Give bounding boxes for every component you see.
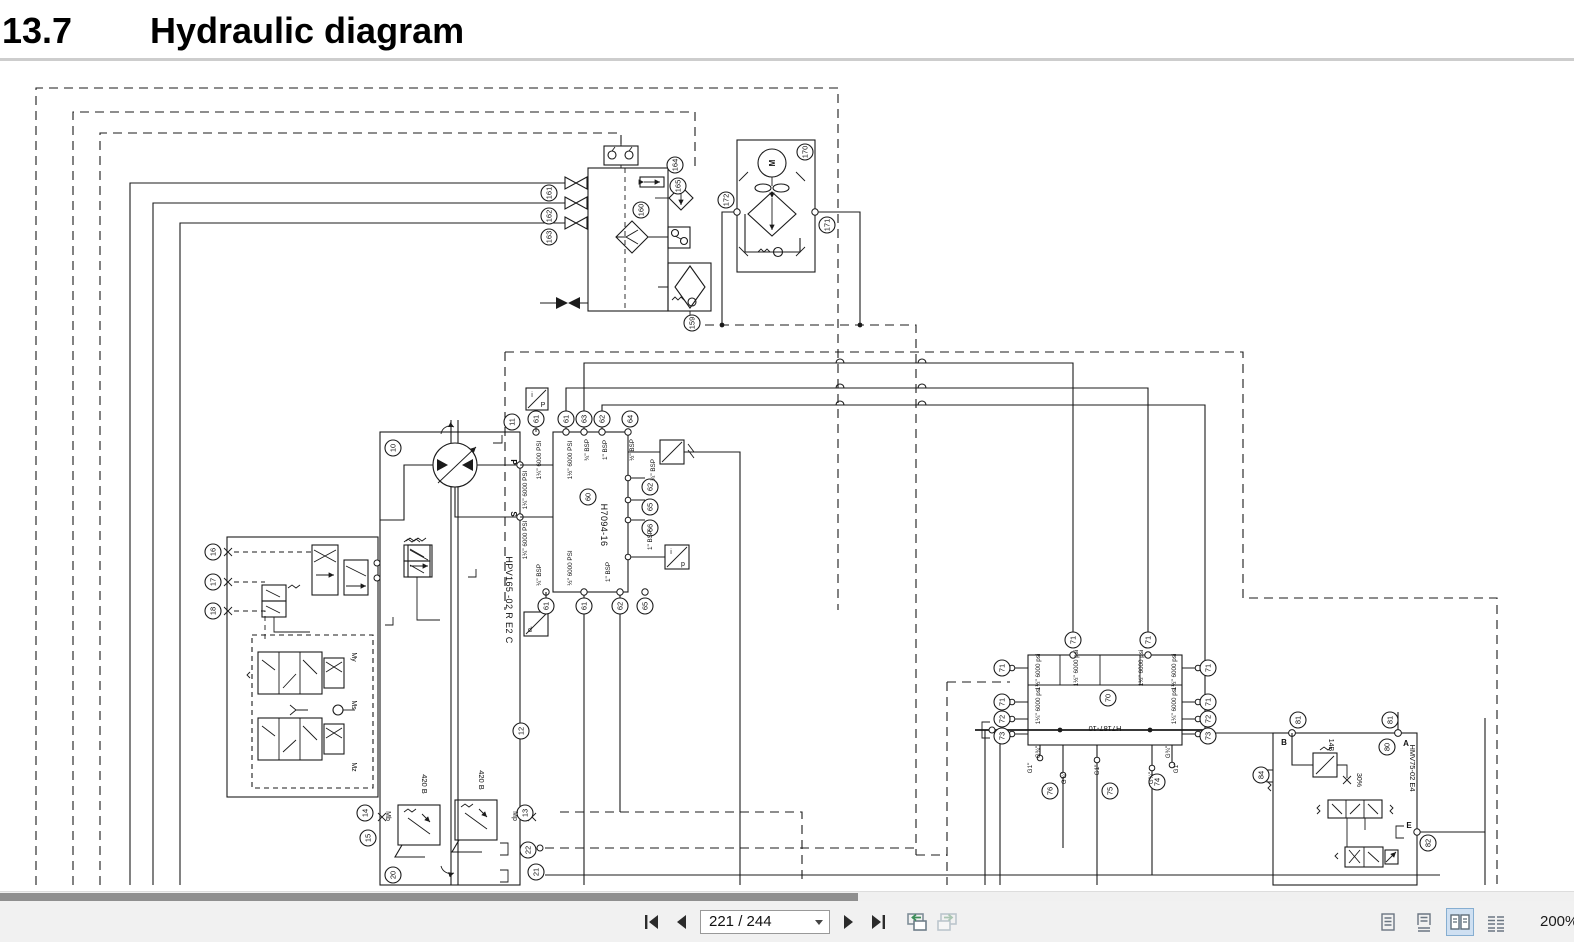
svg-text:1½" 6000 PSI: 1½" 6000 PSI bbox=[566, 440, 574, 479]
svg-text:162: 162 bbox=[545, 210, 554, 223]
svg-text:84: 84 bbox=[1257, 771, 1266, 779]
svg-text:18: 18 bbox=[209, 607, 218, 615]
svg-text:16: 16 bbox=[209, 548, 218, 556]
two-page-continuous-view-icon bbox=[1485, 911, 1507, 933]
svg-text:i: i bbox=[670, 549, 672, 556]
motor-block-label: HMV75-02 E4 bbox=[1408, 744, 1417, 791]
svg-text:72: 72 bbox=[1204, 715, 1213, 723]
svg-text:B: B bbox=[1281, 738, 1287, 747]
left-valve-group bbox=[224, 537, 432, 797]
svg-text:63: 63 bbox=[580, 415, 589, 423]
svg-text:G¾": G¾" bbox=[1061, 772, 1068, 784]
previous-view-icon bbox=[904, 911, 928, 933]
svg-text:¾" BSP: ¾" BSP bbox=[584, 439, 591, 461]
svg-text:71: 71 bbox=[1204, 664, 1213, 672]
svg-text:G¾": G¾" bbox=[1165, 746, 1172, 758]
svg-text:65: 65 bbox=[646, 503, 655, 511]
svg-text:21: 21 bbox=[532, 868, 541, 876]
svg-text:Ms: Ms bbox=[350, 700, 357, 710]
svg-text:10: 10 bbox=[389, 444, 398, 452]
svg-text:1½" 6000 psi: 1½" 6000 psi bbox=[1137, 650, 1145, 687]
next-page-icon bbox=[838, 912, 858, 932]
svg-text:62: 62 bbox=[598, 415, 607, 423]
motor-cooler-block: M bbox=[722, 140, 860, 325]
svg-text:G1": G1" bbox=[1173, 763, 1180, 774]
svg-text:73: 73 bbox=[1204, 732, 1213, 740]
svg-text:71: 71 bbox=[1204, 698, 1213, 706]
svg-text:82: 82 bbox=[1424, 839, 1433, 847]
pdf-toolbar: 221 / 244 bbox=[0, 901, 1574, 942]
first-page-button[interactable] bbox=[640, 910, 664, 934]
svg-text:G1": G1" bbox=[1027, 763, 1034, 774]
svg-text:17: 17 bbox=[209, 578, 218, 586]
single-page-view-button[interactable] bbox=[1374, 908, 1402, 936]
svg-text:81: 81 bbox=[1386, 716, 1395, 724]
svg-text:G¾": G¾" bbox=[1035, 746, 1042, 758]
svg-text:62: 62 bbox=[646, 483, 655, 491]
previous-view-button[interactable] bbox=[904, 910, 928, 934]
svg-text:60: 60 bbox=[584, 493, 593, 501]
svg-text:61: 61 bbox=[542, 602, 551, 610]
svg-text:i: i bbox=[531, 392, 533, 399]
relief-setting-right: 420 B bbox=[477, 770, 486, 790]
pilot-valve-label: 14B bbox=[1327, 739, 1334, 752]
svg-text:15: 15 bbox=[364, 834, 373, 842]
svg-text:14: 14 bbox=[361, 809, 370, 817]
svg-text:1¼" 6000 PSI: 1¼" 6000 PSI bbox=[536, 440, 543, 479]
svg-text:76: 76 bbox=[1046, 787, 1055, 795]
svg-text:½" 6000 PSI: ½" 6000 PSI bbox=[566, 550, 574, 585]
svg-text:1¼" 6000 PSI: 1¼" 6000 PSI bbox=[522, 470, 529, 509]
svg-text:165: 165 bbox=[674, 180, 683, 193]
svg-text:½" BSP: ½" BSP bbox=[628, 439, 636, 461]
svg-text:160: 160 bbox=[637, 204, 646, 217]
motor-valve-block bbox=[1267, 730, 1420, 885]
svg-text:71: 71 bbox=[998, 664, 1007, 672]
svg-text:65: 65 bbox=[641, 602, 650, 610]
center-manifold-label: H7094-16 bbox=[599, 504, 609, 547]
continuous-view-button[interactable] bbox=[1410, 908, 1438, 936]
page-layout-controls: 200% bbox=[1374, 901, 1574, 942]
next-page-button[interactable] bbox=[836, 910, 860, 934]
previous-page-button[interactable] bbox=[670, 910, 694, 934]
svg-text:70: 70 bbox=[1104, 694, 1113, 702]
tank-unit bbox=[540, 140, 711, 317]
svg-text:22: 22 bbox=[524, 846, 533, 854]
svg-text:P: P bbox=[509, 459, 518, 465]
svg-text:75: 75 bbox=[1106, 787, 1115, 795]
motor-label: M bbox=[768, 159, 777, 166]
svg-text:1" BSP: 1" BSP bbox=[602, 440, 609, 460]
two-page-view-icon bbox=[1449, 911, 1471, 933]
continuous-view-icon bbox=[1413, 911, 1435, 933]
svg-text:¾" BSP: ¾" BSP bbox=[650, 459, 657, 481]
svg-text:72: 72 bbox=[998, 715, 1007, 723]
svg-text:A: A bbox=[1403, 739, 1409, 748]
svg-text:1¼" 6000 PSI: 1¼" 6000 PSI bbox=[522, 520, 529, 559]
svg-text:71: 71 bbox=[1069, 636, 1078, 644]
svg-text:1" BSP: 1" BSP bbox=[647, 530, 654, 550]
relief-setting-left: 420 B bbox=[420, 774, 429, 794]
svg-text:20: 20 bbox=[389, 871, 398, 879]
zoom-level[interactable]: 200% bbox=[1540, 913, 1574, 930]
svg-text:81: 81 bbox=[1294, 716, 1303, 724]
component-labels: HPV165 -02 R E2 C H7094-16 H7187-10 HMV7… bbox=[420, 504, 1417, 794]
svg-text:E: E bbox=[1406, 821, 1412, 830]
first-page-icon bbox=[642, 912, 662, 932]
svg-text:1¼" 6000 psi: 1¼" 6000 psi bbox=[1035, 688, 1042, 725]
svg-text:64: 64 bbox=[626, 415, 635, 423]
svg-text:My: My bbox=[350, 652, 357, 662]
svg-text:73: 73 bbox=[998, 732, 1007, 740]
previous-page-icon bbox=[672, 912, 692, 932]
svg-text:163: 163 bbox=[545, 231, 554, 244]
svg-text:171: 171 bbox=[823, 219, 832, 232]
svg-text:Mz: Mz bbox=[350, 762, 357, 772]
hydraulic-diagram: M bbox=[0, 0, 1574, 891]
page-dropdown-caret-icon[interactable] bbox=[815, 920, 823, 925]
svg-text:1¼" 6000 psi: 1¼" 6000 psi bbox=[1171, 688, 1178, 725]
svg-text:d: d bbox=[528, 627, 532, 634]
svg-text:71: 71 bbox=[998, 698, 1007, 706]
page-indicator: 221 / 244 bbox=[709, 913, 772, 930]
svg-text:13: 13 bbox=[521, 809, 530, 817]
svg-text:p: p bbox=[681, 561, 685, 568]
svg-text:P: P bbox=[541, 402, 546, 409]
svg-text:¼" BSP: ¼" BSP bbox=[536, 564, 543, 586]
svg-text:1" BSP: 1" BSP bbox=[605, 562, 612, 582]
two-page-continuous-view-button[interactable] bbox=[1482, 908, 1510, 936]
svg-text:1½" 6000 psi: 1½" 6000 psi bbox=[1170, 654, 1178, 691]
last-page-button[interactable] bbox=[866, 910, 890, 934]
svg-text:62: 62 bbox=[616, 602, 625, 610]
svg-text:G1": G1" bbox=[1094, 765, 1101, 776]
orifice-percent-label: 30% bbox=[1355, 773, 1362, 787]
svg-text:Mp: Mp bbox=[511, 811, 518, 821]
svg-text:170: 170 bbox=[801, 146, 810, 159]
last-page-icon bbox=[868, 912, 888, 932]
svg-text:61: 61 bbox=[532, 415, 541, 423]
svg-text:1½" 6000 psi: 1½" 6000 psi bbox=[1072, 650, 1080, 687]
single-page-view-icon bbox=[1377, 911, 1399, 933]
right-manifold-label: H7187-10 bbox=[1089, 724, 1122, 733]
svg-text:61: 61 bbox=[580, 602, 589, 610]
svg-text:80: 80 bbox=[1383, 743, 1392, 751]
svg-text:61: 61 bbox=[562, 415, 571, 423]
svg-text:164: 164 bbox=[671, 159, 680, 172]
svg-text:1½" 6000 psi: 1½" 6000 psi bbox=[1034, 654, 1042, 691]
pump-model-label: HPV165 -02 R E2 C bbox=[504, 556, 514, 643]
svg-text:159: 159 bbox=[688, 317, 697, 330]
next-view-icon bbox=[934, 911, 958, 933]
svg-text:11: 11 bbox=[508, 418, 517, 426]
reference-numbers: 161 162 163 164 165 160 159 170 172 171 … bbox=[205, 144, 1436, 883]
horizontal-scrollbar-thumb[interactable] bbox=[0, 893, 858, 901]
page-navigation: 221 / 244 bbox=[640, 901, 958, 942]
page-number-input[interactable]: 221 / 244 bbox=[700, 910, 830, 934]
two-page-view-button[interactable] bbox=[1446, 908, 1474, 936]
svg-text:12: 12 bbox=[517, 727, 526, 735]
svg-text:172: 172 bbox=[722, 194, 731, 207]
routing-lines bbox=[36, 88, 1497, 885]
svg-text:S: S bbox=[509, 511, 518, 517]
svg-text:G¾": G¾" bbox=[1148, 772, 1155, 784]
svg-text:161: 161 bbox=[545, 187, 554, 200]
svg-text:71: 71 bbox=[1144, 636, 1153, 644]
next-view-button[interactable] bbox=[934, 910, 958, 934]
svg-text:Mb: Mb bbox=[384, 811, 391, 821]
